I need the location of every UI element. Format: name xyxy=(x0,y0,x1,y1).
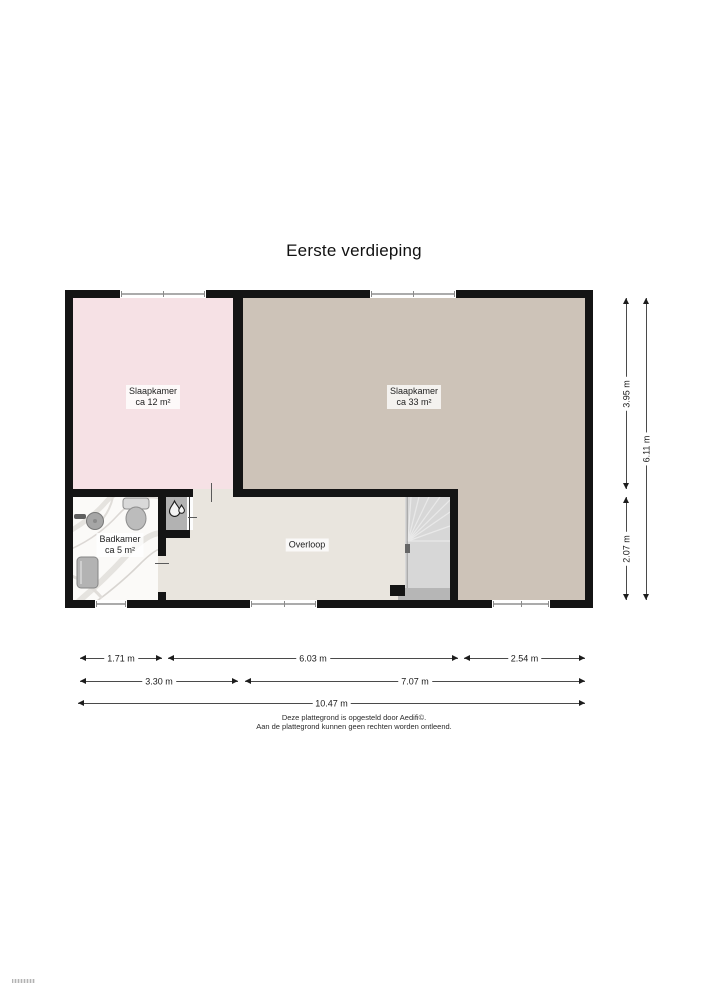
door-tick-bathroom xyxy=(155,563,169,564)
door-opening-bedroom-left xyxy=(193,489,233,497)
arrow-right-icon xyxy=(579,655,585,661)
dim-171: 1.71 m xyxy=(80,655,162,662)
dim-label: 2.07 m xyxy=(621,532,632,566)
window-tick xyxy=(371,291,372,297)
dim-254: 2.54 m xyxy=(464,655,585,662)
window-tick xyxy=(96,601,97,607)
toilet-icon xyxy=(123,498,149,530)
dim-label: 2.54 m xyxy=(508,653,542,664)
arrow-right-icon xyxy=(579,678,585,684)
window-tick xyxy=(454,291,455,297)
arrow-left-icon xyxy=(80,678,86,684)
label-bedroom-right: Slaapkamer ca 33 m² xyxy=(387,385,441,409)
window-tick xyxy=(493,601,494,607)
arrow-left-icon xyxy=(78,700,84,706)
arrow-left-icon xyxy=(464,655,470,661)
technical-closet-floor xyxy=(166,497,187,530)
arrow-right-icon xyxy=(232,678,238,684)
staircase xyxy=(405,497,450,588)
dim-707: 7.07 m xyxy=(245,678,585,685)
window-top-left xyxy=(120,290,206,298)
room-bedroom-right-floor-extension xyxy=(458,489,585,600)
room-name: Overloop xyxy=(289,540,326,551)
room-area: ca 33 m² xyxy=(390,397,438,408)
room-name: Badkamer xyxy=(99,534,140,545)
page-title: Eerste verdieping xyxy=(0,241,708,261)
arrow-up-icon xyxy=(623,497,629,503)
arrow-right-icon xyxy=(452,655,458,661)
window-top-right xyxy=(370,290,456,298)
disclaimer-line-1: Deze plattegrond is opgesteld door Aedif… xyxy=(0,713,708,722)
dim-label: 6.11 m xyxy=(641,433,652,466)
window-tick xyxy=(204,291,205,297)
arrow-down-icon xyxy=(623,483,629,489)
window-bottom-landing xyxy=(250,600,317,608)
room-name: Slaapkamer xyxy=(390,386,438,397)
window-tick xyxy=(163,291,164,297)
dim-label: 3.30 m xyxy=(142,676,176,687)
window-tick xyxy=(284,601,285,607)
window-tick xyxy=(315,601,316,607)
dim-label: 10.47 m xyxy=(312,698,351,709)
stairs-bottom-landing xyxy=(398,588,450,600)
dim-label: 1.71 m xyxy=(104,653,138,664)
room-name: Slaapkamer xyxy=(129,386,177,397)
copyright-microtext xyxy=(12,979,35,983)
arrow-up-icon xyxy=(643,298,649,304)
dim-label: 3.95 m xyxy=(621,377,632,411)
room-landing-floor-strip xyxy=(166,538,190,600)
window-tick xyxy=(413,291,414,297)
winder-stairs-icon xyxy=(405,497,450,588)
wall-stub xyxy=(390,585,405,596)
arrow-left-icon xyxy=(168,655,174,661)
window-tick xyxy=(521,601,522,607)
arrow-down-icon xyxy=(643,594,649,600)
window-tick xyxy=(251,601,252,607)
label-bathroom: Badkamer ca 5 m² xyxy=(96,533,143,557)
arrow-down-icon xyxy=(623,594,629,600)
door-tick-closet xyxy=(188,517,197,518)
label-bedroom-left: Slaapkamer ca 12 m² xyxy=(126,385,180,409)
dim-label: 6.03 m xyxy=(296,653,330,664)
arrow-right-icon xyxy=(156,655,162,661)
window-tick xyxy=(548,601,549,607)
dim-611: 6.11 m xyxy=(643,298,650,600)
label-landing: Overloop xyxy=(286,539,329,552)
arrow-up-icon xyxy=(623,298,629,304)
door-tick-bedroom-left xyxy=(211,483,212,502)
room-area: ca 5 m² xyxy=(99,545,140,556)
room-area: ca 12 m² xyxy=(129,397,177,408)
window-tick xyxy=(121,291,122,297)
dim-1047: 10.47 m xyxy=(78,700,585,707)
arrow-left-icon xyxy=(245,678,251,684)
dim-330: 3.30 m xyxy=(80,678,238,685)
dim-603: 6.03 m xyxy=(168,655,458,662)
arrow-left-icon xyxy=(80,655,86,661)
closet-door xyxy=(187,497,193,530)
water-drop-icon xyxy=(166,497,187,530)
bathroom-cabinet-icon xyxy=(77,557,98,588)
window-bottom-bathroom xyxy=(95,600,127,608)
window-glass xyxy=(96,603,126,605)
disclaimer: Deze plattegrond is opgesteld door Aedif… xyxy=(0,713,708,731)
floorplan-page: Eerste verdieping xyxy=(0,0,708,1000)
window-tick xyxy=(125,601,126,607)
disclaimer-line-2: Aan de plattegrond kunnen geen rechten w… xyxy=(0,722,708,731)
stair-newel-post xyxy=(405,544,410,553)
closet-door-leaf xyxy=(189,497,190,530)
floor-plan: Slaapkamer ca 12 m² Slaapkamer ca 33 m² … xyxy=(65,290,593,608)
dim-label: 7.07 m xyxy=(398,676,432,687)
dim-207: 2.07 m xyxy=(623,497,630,600)
window-bottom-bedroom xyxy=(492,600,550,608)
door-opening-bathroom xyxy=(158,556,166,592)
arrow-right-icon xyxy=(579,700,585,706)
dim-395: 3.95 m xyxy=(623,298,630,489)
